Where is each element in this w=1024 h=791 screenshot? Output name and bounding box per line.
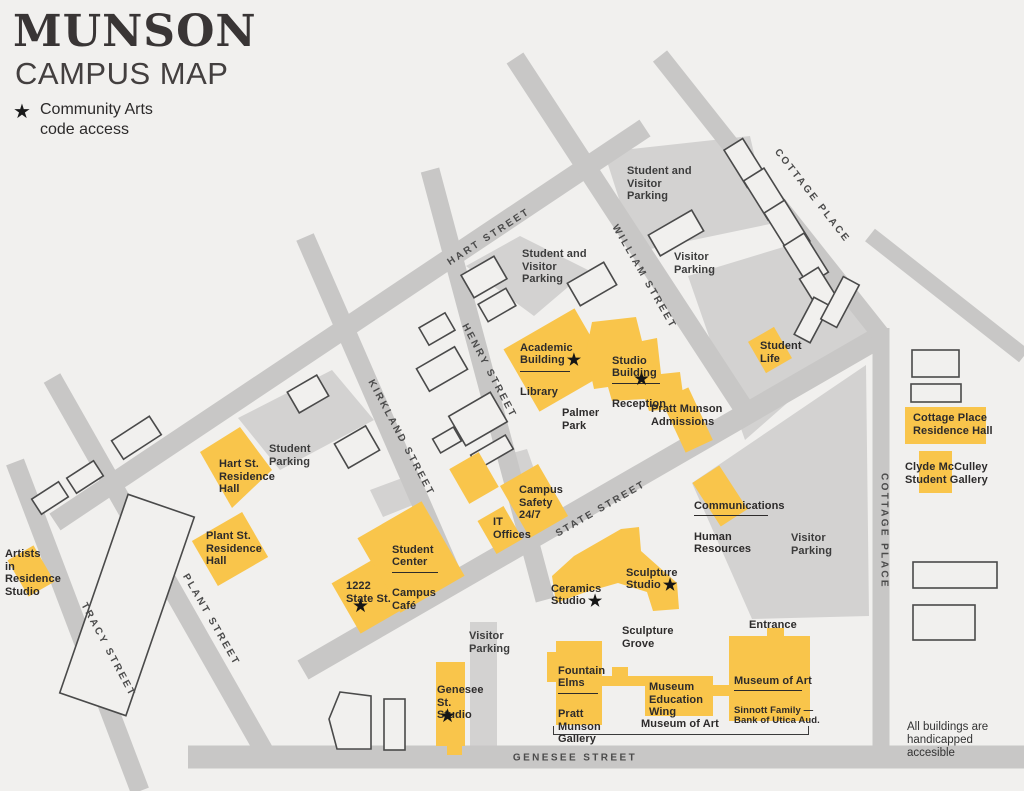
label-admissions: Pratt Munson Admissions bbox=[651, 403, 722, 428]
campus-map: MUNSON CAMPUS MAP ★ Community Arts code … bbox=[0, 0, 1024, 791]
building-subname: Human Resources bbox=[694, 531, 751, 556]
building-outline bbox=[384, 699, 405, 750]
map-graphics bbox=[0, 0, 1024, 791]
parking-label: Student Parking bbox=[269, 443, 311, 468]
map-subtitle: CAMPUS MAP bbox=[15, 56, 228, 92]
label-clyde-mcculley: Clyde McCulley Student Gallery bbox=[905, 461, 988, 486]
building-subname: Library bbox=[520, 386, 558, 398]
community-arts-star-icon: ★ bbox=[588, 593, 602, 610]
legend-label: Community Arts code access bbox=[40, 100, 153, 140]
accessibility-note: All buildings are handicapped accesible bbox=[907, 721, 988, 760]
label-entrance: Entrance bbox=[749, 619, 797, 632]
building-outline bbox=[416, 347, 467, 392]
label-divider bbox=[392, 572, 438, 573]
building-outline bbox=[911, 384, 961, 402]
building-connector-bump bbox=[612, 667, 628, 678]
building-name: Student Center bbox=[392, 544, 434, 569]
label-student-center: Student Center Campus Café bbox=[392, 531, 438, 612]
parking-label: Student and Visitor Parking bbox=[627, 165, 692, 203]
building-outline bbox=[912, 350, 959, 377]
label-sculpture-grove: Sculpture Grove bbox=[622, 625, 674, 650]
label-it-offices: IT Offices bbox=[493, 516, 531, 541]
community-arts-star-icon: ★ bbox=[633, 370, 650, 389]
parking-label: Student and Visitor Parking bbox=[522, 248, 587, 286]
label-communications-hr: Communications Human Resources bbox=[694, 487, 785, 556]
building-subname: Campus Café bbox=[392, 587, 436, 612]
label-cottage-place-hall: Cottage Place Residence Hall bbox=[913, 412, 993, 437]
community-arts-star-icon: ★ bbox=[663, 577, 677, 594]
building-fountain-elms-wing bbox=[547, 652, 558, 682]
label-palmer-park: Palmer Park bbox=[562, 407, 599, 432]
community-arts-star-icon: ★ bbox=[439, 707, 456, 726]
building-outline bbox=[419, 313, 455, 345]
building-outline bbox=[913, 562, 997, 588]
map-title: MUNSON bbox=[13, 6, 257, 57]
label-ceramics-studio: Ceramics Studio★ bbox=[551, 570, 602, 609]
label-hart-residence: Hart St. Residence Hall bbox=[219, 458, 275, 496]
parking-label: Visitor Parking bbox=[469, 630, 510, 655]
community-arts-star-icon: ★ bbox=[567, 352, 581, 369]
label-divider bbox=[520, 371, 570, 372]
building-outline bbox=[329, 692, 371, 749]
label-divider bbox=[734, 690, 802, 691]
parking-label: Visitor Parking bbox=[674, 251, 715, 276]
building-name: Academic Building bbox=[520, 342, 573, 367]
streets bbox=[15, 56, 1024, 791]
community-arts-star-icon: ★ bbox=[352, 597, 369, 616]
label-artists-in-residence: Artists in Residence Studio bbox=[5, 548, 61, 598]
label-divider bbox=[694, 515, 768, 516]
label-sculpture-studio: Sculpture Studio★ bbox=[626, 554, 678, 593]
building-genesee-studio-base bbox=[447, 746, 462, 755]
label-academic-library: Academic Building★ Library bbox=[520, 329, 581, 399]
street-cottage-branch bbox=[870, 235, 1024, 356]
label-plant-residence: Plant St. Residence Hall bbox=[206, 530, 262, 568]
building-name: Communications bbox=[694, 500, 785, 512]
museum-bracket-line bbox=[553, 726, 809, 735]
parking-label: Visitor Parking bbox=[791, 532, 832, 557]
street-label-cottage-vertical: COTTAGE PLACE bbox=[879, 473, 890, 589]
legend-star-icon: ★ bbox=[13, 99, 31, 124]
building-connector-east bbox=[713, 685, 731, 696]
building-outline bbox=[913, 605, 975, 640]
building-name: Fountain Elms bbox=[558, 665, 605, 690]
street-label-genesee: GENESEE STREET bbox=[513, 753, 637, 764]
label-student-life: Student Life bbox=[760, 340, 802, 365]
label-divider bbox=[558, 693, 598, 694]
building-name: Museum of Art bbox=[734, 675, 812, 687]
label-education-wing: Museum Education Wing bbox=[649, 681, 703, 719]
